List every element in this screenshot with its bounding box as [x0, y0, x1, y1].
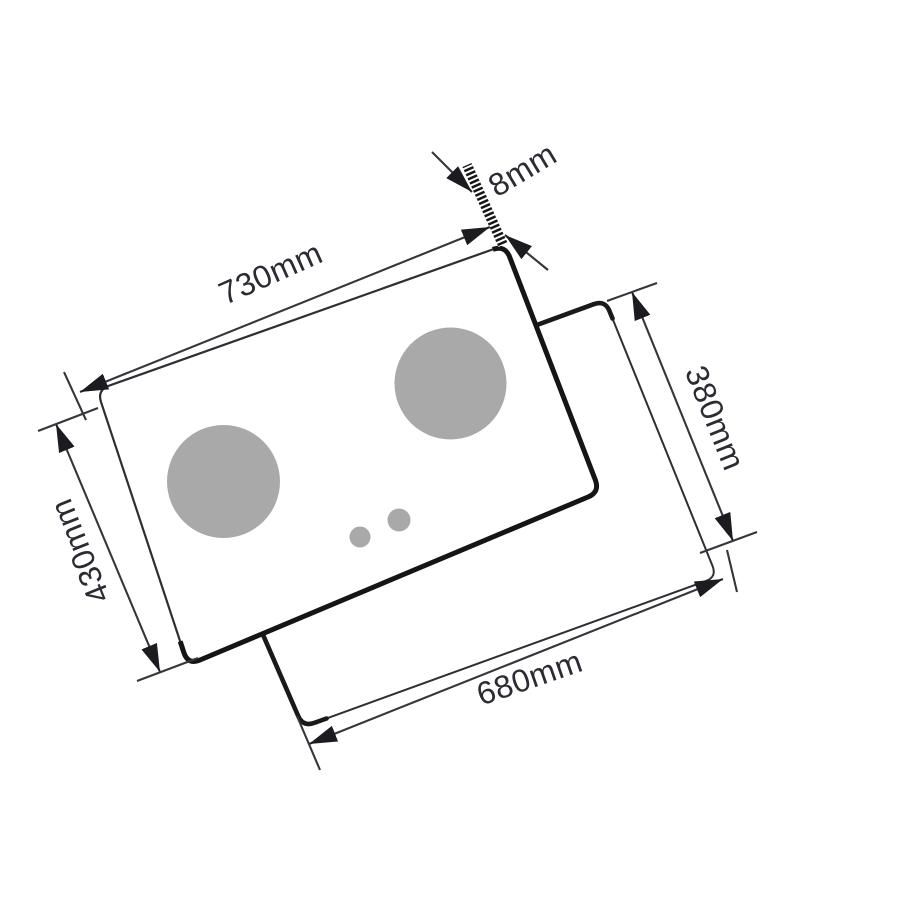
hob-dimension-diagram: 730mm 8mm 380mm 430mm 680mm [0, 0, 901, 901]
burner-right [395, 328, 507, 440]
ignition-dot-small [350, 527, 371, 548]
burner-left [167, 425, 280, 538]
ignition-dot-large [388, 509, 411, 532]
diagram-svg: 730mm 8mm 380mm 430mm 680mm [0, 0, 901, 901]
